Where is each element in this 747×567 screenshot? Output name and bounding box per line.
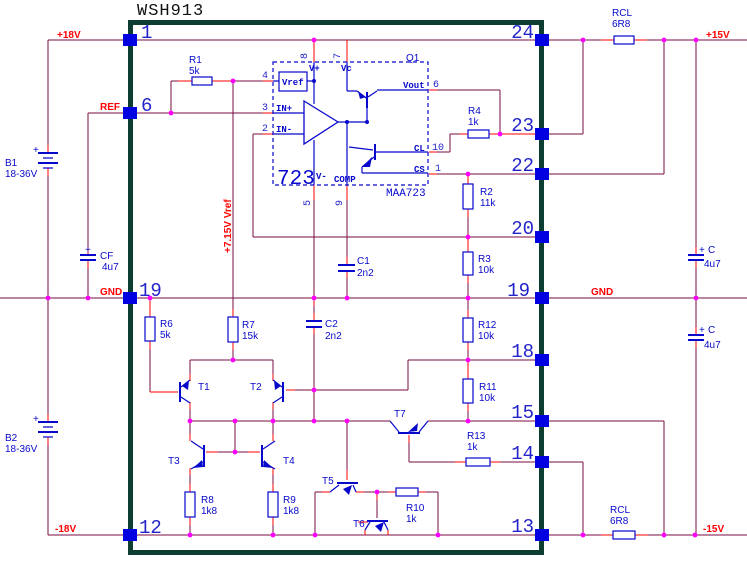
resistor-value: 1k <box>467 442 479 453</box>
capacitor-c-right-bottom: + C 4u7 <box>688 325 721 351</box>
capacitor-cf: + CF 4u7 <box>80 245 119 273</box>
resistor-value: 1k <box>468 117 480 128</box>
ic-pin9: 9 <box>335 200 346 206</box>
ic-723-lower-transistor-arrow <box>362 157 372 167</box>
resistor-name: R2 <box>480 187 493 198</box>
opamp-symbol <box>304 101 338 144</box>
ic-label-q1: Q1 <box>406 53 420 64</box>
resistor-r9: R9 1k8 <box>268 492 300 517</box>
ic-pin1: 1 <box>435 164 441 175</box>
net-label-gnd-left: GND <box>100 287 122 298</box>
resistor-value: 10k <box>479 393 496 404</box>
module-title: WSH913 <box>137 2 204 21</box>
pin-number-13: 13 <box>511 516 534 538</box>
resistor-value: 1k8 <box>201 506 218 517</box>
ic-label-vref: Vref <box>282 78 304 88</box>
capacitor-value: 4u7 <box>102 262 119 273</box>
resistor-value: 10k <box>478 331 495 342</box>
net-label-m18v: -18V <box>55 524 76 535</box>
ic-label-vplus: V+ <box>309 64 320 74</box>
plus-mark: + <box>85 245 91 256</box>
resistor-name: R7 <box>242 320 255 331</box>
capacitor-value: 4u7 <box>704 259 721 270</box>
pin-number-23: 23 <box>511 115 534 137</box>
capacitor-value: 2n2 <box>325 331 342 342</box>
pin-number-19-right: 19 <box>507 280 530 302</box>
capacitor-c2: C2 2n2 <box>306 319 342 342</box>
transistor-t3: T3 <box>168 441 204 469</box>
net-label-p15v: +15V <box>706 30 730 41</box>
resistor-value: 6R8 <box>610 516 629 527</box>
resistor-name: RCL <box>610 505 630 516</box>
transistor-t7: T7 <box>390 409 428 433</box>
resistor-r13: R13 1k <box>466 431 490 466</box>
transistor-t1: T1 <box>180 380 210 403</box>
resistor-name: R12 <box>478 320 497 331</box>
ic-723: Vref V+ Vc IN+ IN- V- COMP CL CS Vout 72… <box>262 53 444 206</box>
resistors: R1 5k RCL 6R8 R4 1k R2 11k R3 10k R12 10… <box>145 8 635 539</box>
transistor-label: T4 <box>283 456 295 467</box>
resistor-value: 15k <box>242 331 259 342</box>
resistor-r11: R11 10k <box>463 379 497 404</box>
resistor-r1: R1 5k <box>189 55 212 85</box>
capacitor-c-right-top: + C 4u7 <box>688 245 721 270</box>
ic-label-vminus: V- <box>316 172 327 182</box>
module-border <box>131 23 542 553</box>
batteries: + B1 18-36V + B2 18-36V <box>5 145 58 455</box>
ic-pin10: 10 <box>432 143 444 154</box>
capacitor-name: C1 <box>357 256 370 267</box>
resistor-value: 6R8 <box>612 19 631 30</box>
transistor-label: T6 <box>353 519 365 530</box>
resistor-name: R13 <box>467 431 486 442</box>
ic-pin6: 6 <box>433 80 439 91</box>
resistor-r12: R12 10k <box>463 318 497 342</box>
resistor-value: 5k <box>189 66 201 77</box>
net-label-ref: REF <box>100 102 120 113</box>
plus-mark: + <box>33 145 39 156</box>
ic-label-cl: CL <box>414 144 425 154</box>
ic-label-part: MAA723 <box>386 188 426 200</box>
battery-b1: + B1 18-36V <box>5 145 58 180</box>
resistor-value: 1k8 <box>283 506 300 517</box>
resistor-name: R11 <box>479 382 497 393</box>
transistor-label: T2 <box>250 382 262 393</box>
ic-pin3: 3 <box>262 103 268 114</box>
transistor-t2: T2 <box>250 380 283 403</box>
pin-number-18: 18 <box>511 341 534 363</box>
resistor-name: R9 <box>283 495 296 506</box>
pin-number-14: 14 <box>511 443 534 465</box>
resistor-name: R6 <box>160 319 173 330</box>
pin-number-6: 6 <box>141 95 152 117</box>
ic-label-723: 723 <box>277 168 315 191</box>
transistor-label: T3 <box>168 456 180 467</box>
ic-pin7: 7 <box>333 53 344 59</box>
ic-label-comp: COMP <box>334 175 356 185</box>
net-label-gnd-right: GND <box>591 287 613 298</box>
resistor-rcl-top: RCL 6R8 <box>612 8 634 44</box>
battery-name: B1 <box>5 158 18 169</box>
plus-mark: + <box>33 414 39 425</box>
transistor-label: T5 <box>322 476 334 487</box>
ic-label-inplus: IN+ <box>276 104 292 114</box>
transistor-t4: T4 <box>262 441 295 469</box>
plus-mark: + <box>699 245 705 256</box>
resistor-name: R8 <box>201 495 214 506</box>
resistor-value: 5k <box>160 330 172 341</box>
resistor-value: 10k <box>478 265 495 276</box>
ic-pin4: 4 <box>262 71 268 82</box>
pin-number-24: 24 <box>511 22 534 44</box>
resistor-r7: R7 15k <box>228 317 259 342</box>
battery-b2: + B2 18-36V <box>5 414 58 455</box>
capacitor-value: 2n2 <box>357 268 374 279</box>
plus-mark: + <box>699 325 705 336</box>
ic-pin5: 5 <box>303 200 314 206</box>
resistor-r10: R10 1k <box>396 488 425 525</box>
resistor-r6: R6 5k <box>145 317 173 341</box>
ic-pin8: 8 <box>300 53 311 59</box>
resistor-r8: R8 1k8 <box>185 492 218 517</box>
pin-number-1: 1 <box>141 22 152 44</box>
resistor-name: R3 <box>478 254 491 265</box>
net-label-p18v: +18V <box>57 30 81 41</box>
ic-label-cs: CS <box>414 165 425 175</box>
transistor-t6: T6 <box>353 519 388 532</box>
capacitor-value: 4u7 <box>704 340 721 351</box>
net-label-vref-note: +7.15V Vref <box>223 199 234 253</box>
resistor-name: R10 <box>406 503 425 514</box>
ic-junction <box>345 120 349 124</box>
capacitor-name: C2 <box>325 319 338 330</box>
ic-junction <box>312 79 316 83</box>
resistor-name: R1 <box>189 55 202 66</box>
schematic-canvas: WSH913 Vref V+ Vc IN+ IN- V- COMP CL CS … <box>0 0 747 567</box>
ic-pin2: 2 <box>262 124 268 135</box>
capacitor-name: C <box>708 325 715 336</box>
resistor-rcl-bottom: RCL 6R8 <box>610 505 635 539</box>
resistor-name: RCL <box>612 8 632 19</box>
resistor-value: 1k <box>406 514 418 525</box>
battery-name: B2 <box>5 433 18 444</box>
resistor-r3: R3 10k <box>463 252 495 276</box>
ic-label-vout: Vout <box>403 81 425 91</box>
ic-junction <box>365 120 369 124</box>
ic-label-inminus: IN- <box>276 125 292 135</box>
transistor-label: T7 <box>394 409 406 420</box>
capacitor-name: C <box>708 245 715 256</box>
resistor-r2: R2 11k <box>463 184 496 209</box>
pin-number-19-left: 19 <box>139 280 162 302</box>
schematic-page: WSH913 Vref V+ Vc IN+ IN- V- COMP CL CS … <box>0 0 747 567</box>
net-label-m15v: -15V <box>703 524 724 535</box>
pin-number-15: 15 <box>511 402 534 424</box>
battery-value: 18-36V <box>5 444 38 455</box>
resistor-name: R4 <box>468 106 481 117</box>
pin-number-20: 20 <box>511 218 534 240</box>
resistor-r4: R4 1k <box>468 106 489 138</box>
pin-number-12: 12 <box>139 517 162 539</box>
resistor-value: 11k <box>480 198 496 209</box>
transistor-label: T1 <box>198 382 210 393</box>
ic-label-vc: Vc <box>341 64 352 74</box>
battery-value: 18-36V <box>5 169 38 180</box>
capacitor-c1: C1 2n2 <box>338 256 374 279</box>
pin-number-22: 22 <box>511 155 534 177</box>
capacitor-name: CF <box>100 251 113 262</box>
